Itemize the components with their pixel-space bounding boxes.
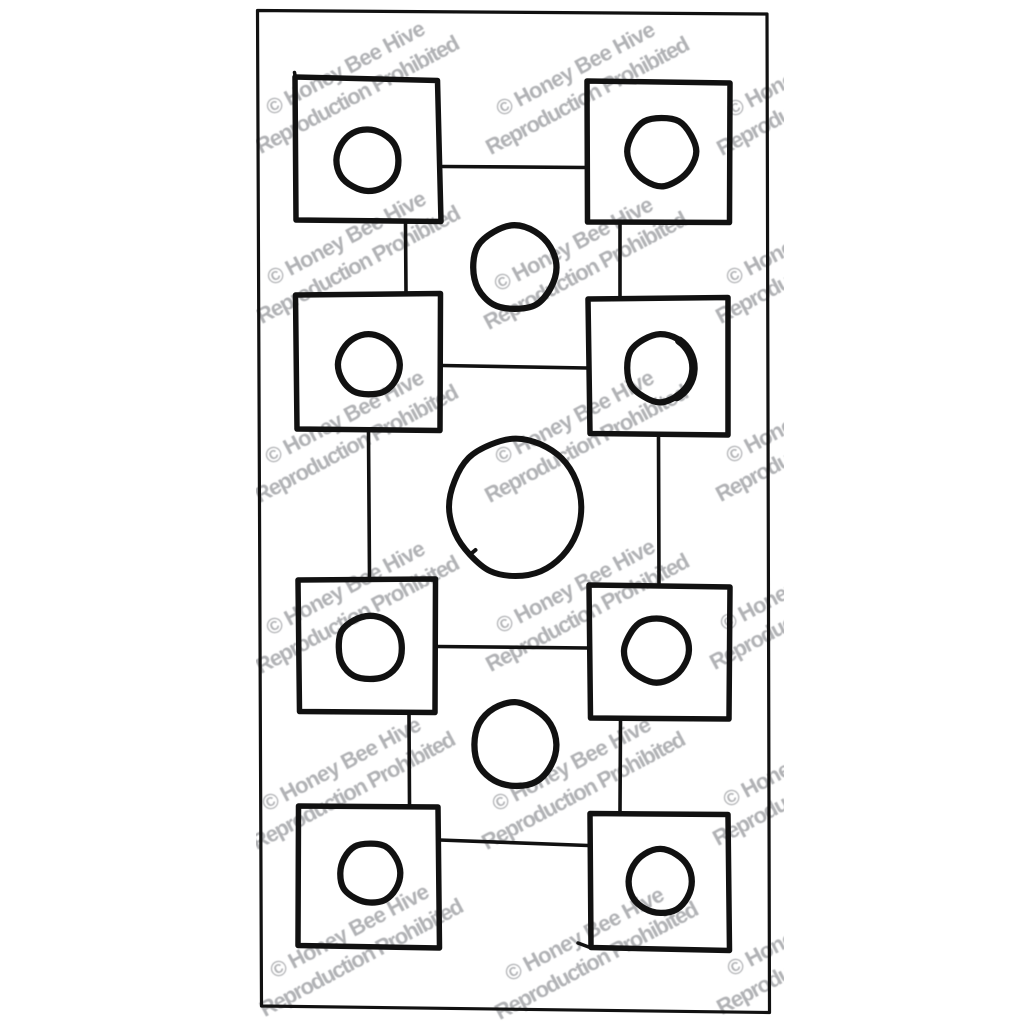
svg-text:© Honey Bee Hive: © Honey Bee Hive [719,708,886,813]
svg-text:© Honey Bee Hive: © Honey Bee Hive [722,364,889,469]
svg-text:© Honey Bee Hive: © Honey Bee Hive [722,186,889,291]
svg-text:© Honey Bee Hive: © Honey Bee Hive [723,18,890,123]
svg-text:© Honey Bee Hive: © Honey Bee Hive [716,532,883,637]
svg-text:© Honey Bee Hive: © Honey Bee Hive [723,877,890,982]
